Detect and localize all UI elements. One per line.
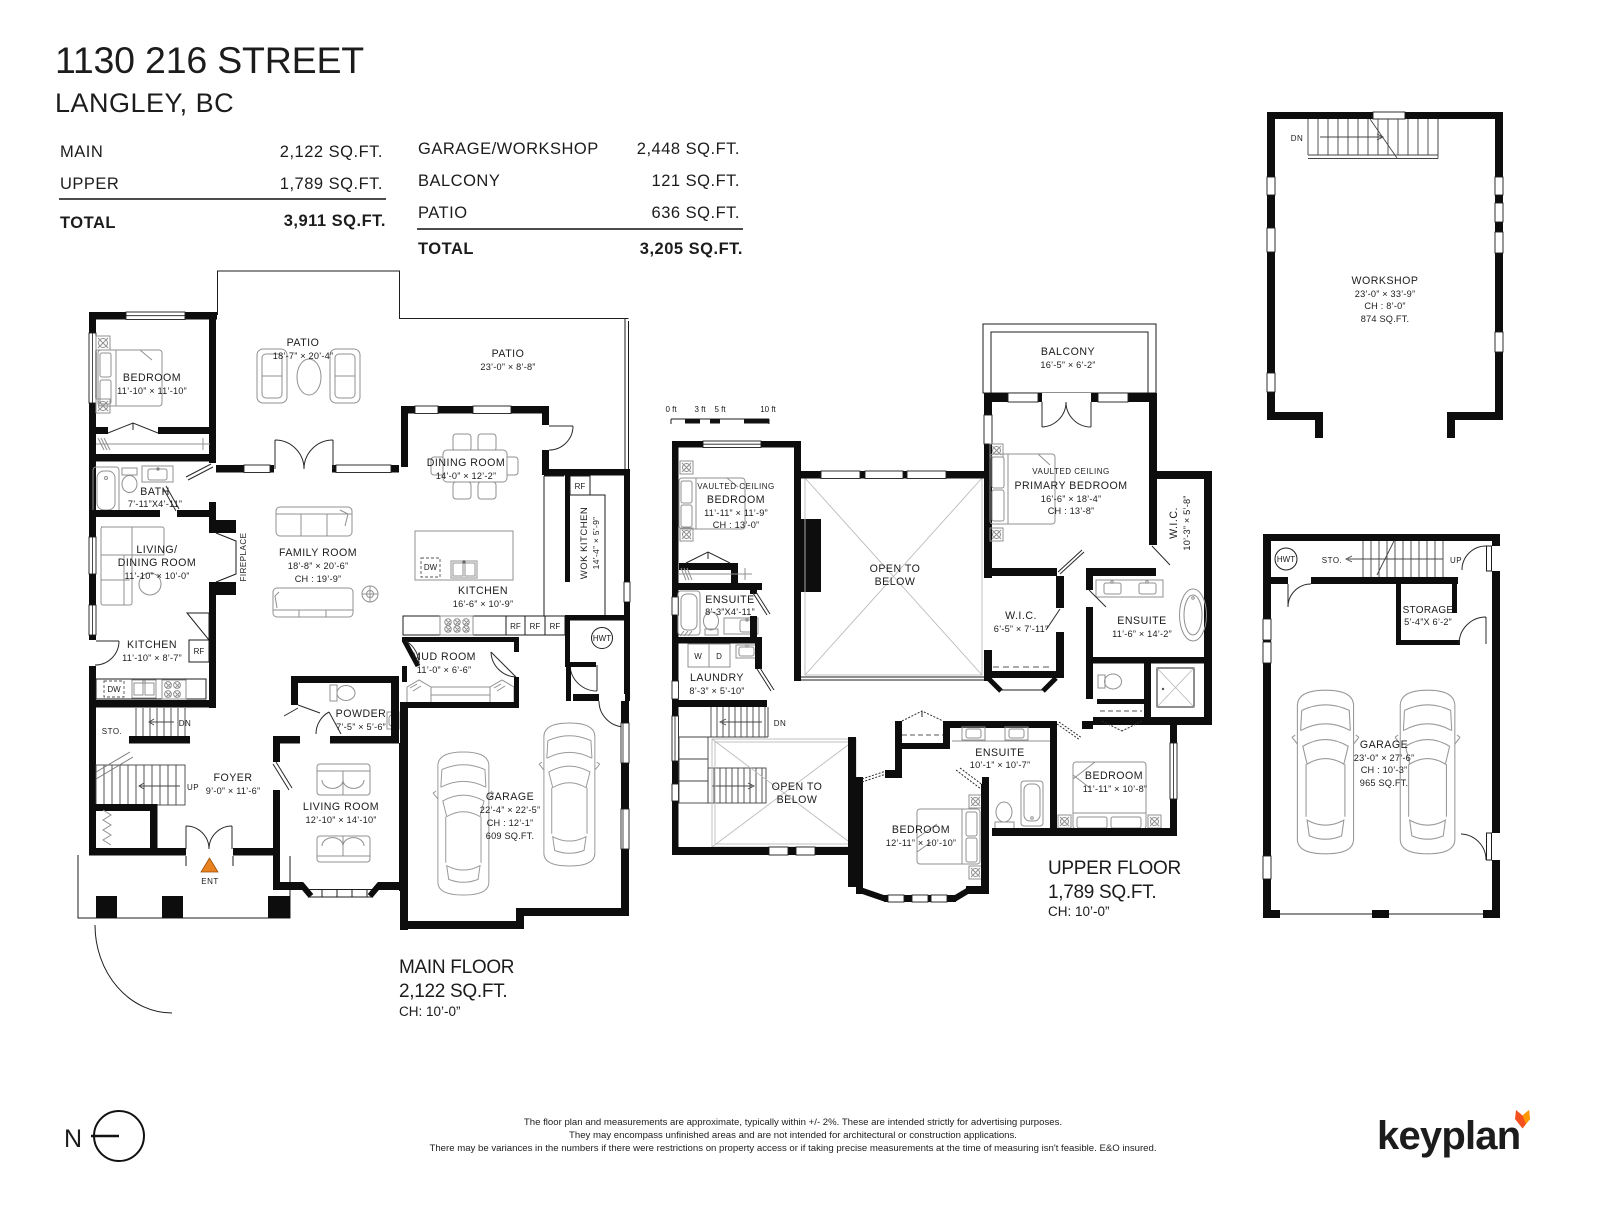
svg-text:FOYER: FOYER: [214, 772, 253, 784]
svg-text:RF: RF: [530, 622, 541, 631]
svg-text:ENT: ENT: [201, 877, 219, 886]
svg-text:OPEN TO: OPEN TO: [870, 563, 921, 575]
svg-text:18’-7” × 20’-4”: 18’-7” × 20’-4”: [273, 351, 333, 361]
svg-text:UP: UP: [1450, 556, 1462, 565]
svg-text:TOTAL: TOTAL: [418, 240, 474, 258]
svg-text:KITCHEN: KITCHEN: [458, 585, 508, 597]
svg-text:RF: RF: [550, 622, 561, 631]
svg-text:GARAGE/WORKSHOP: GARAGE/WORKSHOP: [418, 140, 599, 158]
svg-text:DINING ROOM: DINING ROOM: [427, 457, 505, 469]
svg-text:FIREPLACE: FIREPLACE: [239, 533, 248, 582]
svg-text:6’-5” × 7’-11”: 6’-5” × 7’-11”: [994, 624, 1048, 634]
svg-text:WORKSHOP: WORKSHOP: [1352, 275, 1419, 287]
svg-text:The floor plan and measurement: The floor plan and measurements are appr…: [524, 1117, 1062, 1128]
svg-text:DINING ROOM: DINING ROOM: [118, 557, 196, 569]
svg-text:BEDROOM: BEDROOM: [1085, 770, 1143, 782]
svg-text:2,448 SQ.FT.: 2,448 SQ.FT.: [637, 140, 740, 158]
svg-text:LIVING ROOM: LIVING ROOM: [303, 801, 379, 813]
svg-text:11’-0” × 6’-6”: 11’-0” × 6’-6”: [417, 665, 471, 675]
svg-text:MAIN: MAIN: [60, 143, 103, 161]
svg-text:There may be variances in the: There may be variances in the numbers if…: [429, 1143, 1156, 1154]
svg-text:5’-4”X 6’-2”: 5’-4”X 6’-2”: [1404, 617, 1452, 627]
svg-text:CH : 10’-3”: CH : 10’-3”: [1361, 765, 1408, 775]
svg-text:GARAGE: GARAGE: [1360, 739, 1408, 751]
svg-text:11’-10” × 10’-0”: 11’-10” × 10’-0”: [124, 571, 189, 581]
svg-text:HWT: HWT: [1277, 555, 1295, 564]
svg-text:PATIO: PATIO: [492, 348, 525, 360]
svg-text:23’-0” × 33’-9”: 23’-0” × 33’-9”: [1355, 289, 1415, 299]
svg-text:STORAGE: STORAGE: [1403, 605, 1454, 616]
svg-text:965 SQ.FT.: 965 SQ.FT.: [1360, 778, 1408, 788]
svg-text:MUD ROOM: MUD ROOM: [412, 651, 476, 663]
svg-text:1,789 SQ.FT.: 1,789 SQ.FT.: [280, 175, 383, 193]
svg-text:ENSUITE: ENSUITE: [975, 747, 1024, 759]
svg-text:DN: DN: [179, 719, 192, 728]
svg-text:CH : 19’-9”: CH : 19’-9”: [295, 574, 342, 584]
svg-text:W.I.C.: W.I.C.: [1168, 507, 1180, 539]
svg-text:10’-1” × 10’-7”: 10’-1” × 10’-7”: [970, 760, 1030, 770]
svg-text:VAULTED CEILING: VAULTED CEILING: [697, 482, 774, 491]
svg-text:STO.: STO.: [1322, 556, 1343, 565]
svg-text:121 SQ.FT.: 121 SQ.FT.: [652, 172, 740, 190]
svg-text:D: D: [716, 652, 722, 661]
svg-text:BALCONY: BALCONY: [418, 172, 500, 190]
svg-text:10’-3” × 5’-8”: 10’-3” × 5’-8”: [1182, 495, 1192, 550]
svg-text:RF: RF: [510, 622, 521, 631]
svg-text:14’-0” × 12’-2”: 14’-0” × 12’-2”: [436, 471, 496, 481]
svg-text:DN: DN: [774, 719, 787, 728]
svg-text:ENSUITE: ENSUITE: [1117, 615, 1166, 627]
svg-text:RF: RF: [575, 482, 586, 491]
svg-text:1,789 SQ.FT.: 1,789 SQ.FT.: [1048, 882, 1156, 903]
svg-text:W.I.C.: W.I.C.: [1005, 610, 1037, 622]
svg-text:CH: 10’-0”: CH: 10’-0”: [399, 1004, 461, 1019]
svg-text:BALCONY: BALCONY: [1041, 346, 1095, 358]
svg-text:MAIN FLOOR: MAIN FLOOR: [399, 957, 514, 978]
svg-text:11’-6” × 14’-2”: 11’-6” × 14’-2”: [1112, 629, 1172, 639]
svg-text:16’-6” × 10’-9”: 16’-6” × 10’-9”: [453, 599, 513, 609]
svg-text:UP: UP: [187, 783, 199, 792]
svg-text:DN: DN: [1291, 134, 1304, 143]
svg-text:UPPER FLOOR: UPPER FLOOR: [1048, 858, 1181, 879]
svg-text:BELOW: BELOW: [777, 794, 818, 806]
svg-text:5 ft: 5 ft: [714, 405, 726, 414]
svg-text:CH: 10’-0”: CH: 10’-0”: [1048, 904, 1110, 919]
svg-text:8’-3” × 5’-10”: 8’-3” × 5’-10”: [689, 686, 744, 696]
svg-text:VAULTED CEILING: VAULTED CEILING: [1032, 467, 1109, 476]
svg-text:BEDROOM: BEDROOM: [892, 824, 950, 836]
svg-text:WOK KITCHEN: WOK KITCHEN: [579, 507, 590, 580]
svg-text:LAUNDRY: LAUNDRY: [690, 672, 744, 684]
svg-text:keyplan: keyplan: [1377, 1114, 1520, 1158]
svg-text:CH : 13’-8”: CH : 13’-8”: [1048, 506, 1095, 516]
svg-text:8’-3”X4’-11”: 8’-3”X4’-11”: [705, 607, 755, 617]
svg-text:2,122 SQ.FT.: 2,122 SQ.FT.: [399, 981, 507, 1002]
svg-text:12’-11” × 10’-10”: 12’-11” × 10’-10”: [886, 838, 956, 848]
svg-text:23’-0” × 27’-6”: 23’-0” × 27’-6”: [1354, 753, 1414, 763]
svg-text:3,205 SQ.FT.: 3,205 SQ.FT.: [640, 240, 743, 258]
svg-text:874 SQ.FT.: 874 SQ.FT.: [1361, 314, 1409, 324]
svg-text:W: W: [694, 652, 702, 661]
svg-text:DW: DW: [107, 685, 121, 694]
svg-text:BELOW: BELOW: [875, 576, 916, 588]
svg-text:PRIMARY BEDROOM: PRIMARY BEDROOM: [1014, 480, 1127, 492]
svg-text:UPPER: UPPER: [60, 175, 119, 193]
svg-text:7’-5” × 5’-6”: 7’-5” × 5’-6”: [336, 722, 386, 732]
svg-text:ENSUITE: ENSUITE: [705, 594, 754, 606]
svg-text:BEDROOM: BEDROOM: [123, 372, 181, 384]
svg-text:609 SQ.FT.: 609 SQ.FT.: [486, 831, 534, 841]
svg-text:9’-0” × 11’-6”: 9’-0” × 11’-6”: [206, 786, 260, 796]
svg-text:22’-4” × 22’-5”: 22’-4” × 22’-5”: [480, 805, 540, 815]
svg-text:OPEN TO: OPEN TO: [772, 781, 823, 793]
svg-text:PATIO: PATIO: [418, 204, 468, 222]
svg-text:1130 216 STREET: 1130 216 STREET: [55, 39, 364, 81]
svg-text:FAMILY ROOM: FAMILY ROOM: [279, 547, 357, 559]
svg-text:N: N: [64, 1125, 82, 1153]
svg-text:11’-11” × 10’-8”: 11’-11” × 10’-8”: [1083, 784, 1147, 794]
svg-text:18’-8” × 20’-6”: 18’-8” × 20’-6”: [288, 561, 348, 571]
svg-text:LIVING/: LIVING/: [136, 544, 177, 556]
svg-text:3,911 SQ.FT.: 3,911 SQ.FT.: [284, 212, 386, 230]
svg-text:BEDROOM: BEDROOM: [707, 494, 765, 506]
svg-text:POWDER: POWDER: [336, 708, 387, 720]
svg-text:11’-10” × 11’-10”: 11’-10” × 11’-10”: [117, 386, 187, 396]
svg-text:CH : 13’-0”: CH : 13’-0”: [713, 520, 760, 530]
svg-text:KITCHEN: KITCHEN: [127, 639, 177, 651]
svg-text:LANGLEY, BC: LANGLEY, BC: [55, 88, 234, 118]
svg-text:16’-6” × 18’-4”: 16’-6” × 18’-4”: [1041, 494, 1101, 504]
svg-text:STO.: STO.: [102, 727, 123, 736]
svg-text:CH : 8’-0”: CH : 8’-0”: [1364, 301, 1405, 311]
svg-text:GARAGE: GARAGE: [486, 791, 534, 803]
svg-text:3 ft: 3 ft: [694, 405, 706, 414]
svg-text:11’-11” × 11’-9”: 11’-11” × 11’-9”: [704, 508, 768, 518]
svg-text:PATIO: PATIO: [287, 337, 320, 349]
svg-text:HWT: HWT: [593, 634, 611, 643]
svg-text:TOTAL: TOTAL: [60, 214, 116, 232]
svg-text:CH : 12’-1”: CH : 12’-1”: [487, 818, 534, 828]
svg-text:16’-5” × 6’-2”: 16’-5” × 6’-2”: [1040, 360, 1095, 370]
svg-text:RF: RF: [194, 647, 205, 656]
svg-text:2,122 SQ.FT.: 2,122 SQ.FT.: [280, 143, 383, 161]
svg-text:11’-10” × 8’-7”: 11’-10” × 8’-7”: [122, 653, 182, 663]
svg-text:0 ft: 0 ft: [665, 405, 677, 414]
svg-text:10 ft: 10 ft: [760, 405, 776, 414]
svg-text:DW: DW: [424, 563, 438, 572]
svg-text:They may encompass unfinished: They may encompass unfinished areas and …: [569, 1130, 1017, 1141]
svg-text:12’-10” × 14’-10”: 12’-10” × 14’-10”: [305, 815, 376, 825]
svg-text:23’-0” × 8’-8”: 23’-0” × 8’-8”: [480, 362, 535, 372]
svg-text:14’-4” × 5’-9”: 14’-4” × 5’-9”: [591, 517, 601, 570]
svg-text:636 SQ.FT.: 636 SQ.FT.: [652, 204, 740, 222]
